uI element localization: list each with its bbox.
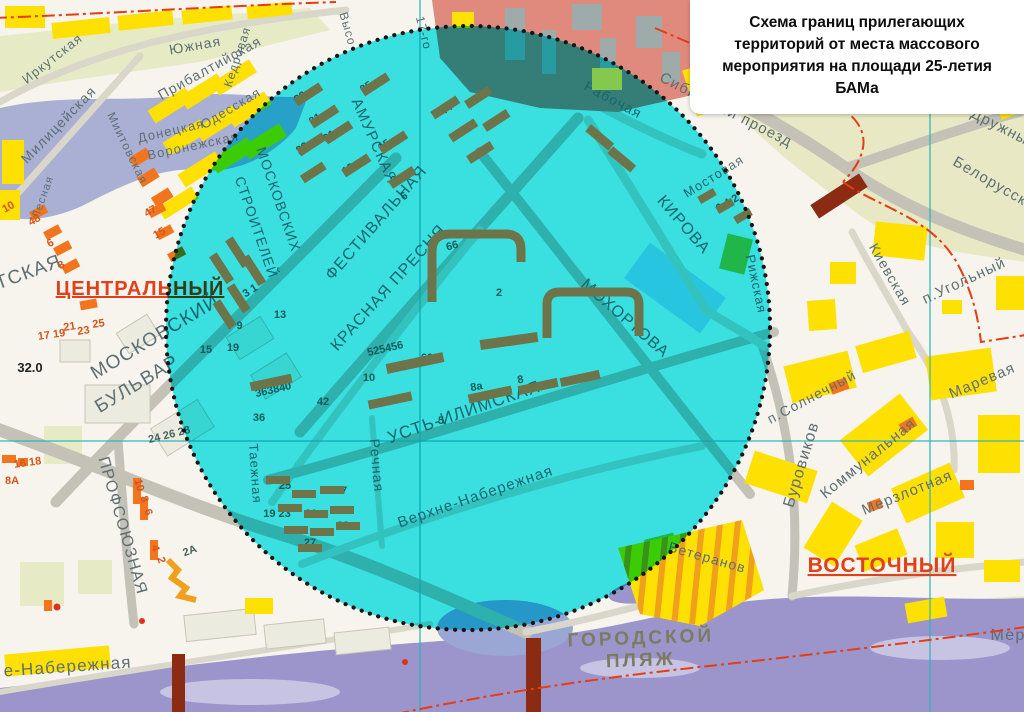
building-number: 25 xyxy=(92,317,106,331)
building-number: 23 xyxy=(77,324,91,338)
elevation-mark: 32.0 xyxy=(17,360,42,375)
event-boundary-area xyxy=(166,26,770,630)
building-number: 21 xyxy=(63,320,77,334)
pier-west xyxy=(172,654,185,712)
street-label: Высо xyxy=(336,11,359,48)
district-label: ВОСТОЧНЫЙ xyxy=(808,553,957,577)
building-number: 16 18 xyxy=(13,455,42,471)
building-number: 8А xyxy=(5,475,19,487)
map-title: Схема границ прилегающих территорий от м… xyxy=(704,12,1010,100)
pier-central xyxy=(526,638,541,712)
title-panel: Схема границ прилегающих территорий от м… xyxy=(690,0,1024,114)
street-label: п.Угольный xyxy=(920,254,1009,308)
building-number: 2А xyxy=(181,543,198,559)
city-map-screenshot: ИркутскаяЮжнаяПрибалтийскаяКедроваяОдесс… xyxy=(0,0,1024,712)
place-label: ПЛЯЖ xyxy=(606,649,677,672)
